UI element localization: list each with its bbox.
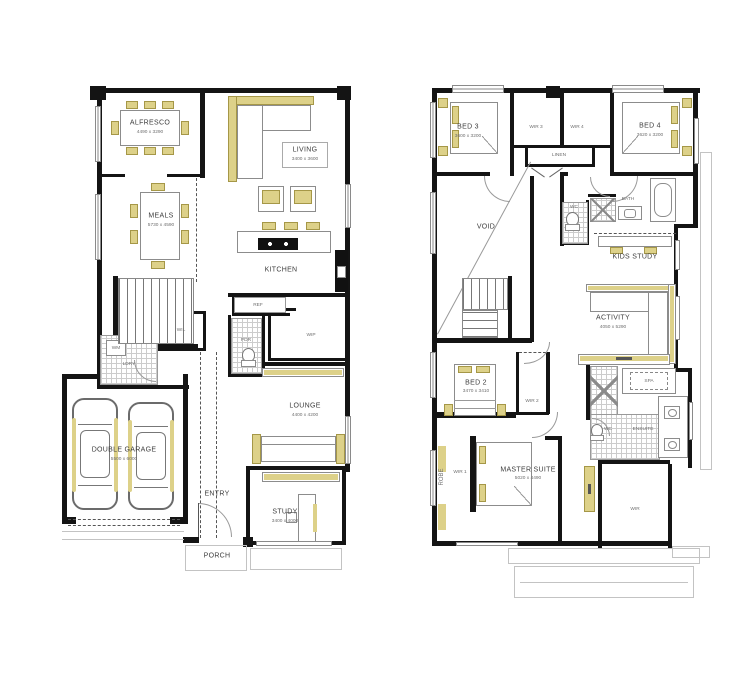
wall [508,276,512,342]
wall [560,88,564,148]
basin-bowl [668,441,677,449]
wall [525,164,595,167]
floor-plan-canvas: ALFRESCO 4490 x 3290 LIVING 3400 x 3600 … [0,0,750,695]
dashed-line [594,233,676,234]
bedside-table [682,146,692,156]
window [430,352,436,398]
window [456,542,518,546]
pillow [671,130,678,148]
pillow [671,106,678,124]
bed-fold [514,486,532,506]
room-label-master: MASTER SUITE [500,467,555,474]
bathtub-inner [654,183,672,217]
pillow [479,484,486,502]
window [430,192,436,254]
door-swing [484,176,510,202]
wall [558,436,562,541]
pillow [479,446,486,464]
room-label-ensuite: ENSUITE [633,427,654,432]
room-label-wir2: WIR 2 [525,399,538,404]
bedside-table [438,98,448,108]
room-dims-bed2: 3470 x 3410 [463,389,489,394]
door-swing [532,412,558,438]
basin-bowl [668,409,677,417]
room-label-activity: ACTIVITY [596,315,630,322]
room-label-wir1: WIR 1 [453,470,466,475]
room-label-bed3: BED 3 [457,124,479,131]
desk [598,236,672,247]
room-dims-bed4: 3620 x 3200 [637,133,663,138]
room-label-kids-study: KIDS STUDY [612,254,657,261]
roof-outline [700,152,712,470]
room-label-bed4: BED 4 [639,123,661,130]
toilet-tank [565,224,580,231]
room-label-wc-bath: WC [570,205,578,210]
sofa-cushion [670,286,674,362]
bedside-table [682,98,692,108]
first-floor-plan: BED 3 3600 x 3200 WIR 3 WIR 4 LINEN BED … [0,0,750,695]
room-label-wc-ensuite: WC [604,427,612,432]
roof-line [520,582,688,583]
room-dims-activity: 4050 x 5290 [600,325,626,330]
bed-fold [482,136,498,154]
wall [510,88,514,176]
robe-shelf [438,504,446,530]
bed-line [454,400,496,401]
room-label-wir3: WIR 3 [529,125,542,130]
wall [545,436,562,440]
shower-icon [590,366,618,416]
room-dims-master: 5020 x 4490 [515,476,541,481]
sofa-seat [648,292,668,356]
wall [432,172,490,176]
stairs [462,278,508,310]
window [612,85,664,93]
room-label-void: VOID [477,224,495,231]
wall [516,352,519,414]
sofa-cushion [588,286,674,290]
wall [610,88,614,176]
console-handle [616,357,632,360]
wall [668,464,672,548]
bedside-table [438,146,448,156]
room-label-wir: WIR [630,507,639,512]
wall [530,176,534,342]
bedside-table [444,404,453,416]
pillow [452,106,459,124]
basin-icon [624,209,636,218]
pillow [476,366,490,373]
wall [598,460,670,464]
bed-line [454,408,496,409]
window [675,240,680,270]
room-label-bath: BATH [622,197,634,202]
roof-outline [672,546,710,558]
window [694,118,699,164]
stairs [462,310,498,338]
wall [432,338,532,343]
dresser-handle [588,484,591,494]
room-label-linen: LINEN [552,153,566,158]
bedside-table [497,404,506,416]
window [452,85,504,93]
wall [598,460,602,548]
pillow [458,366,472,373]
bed-fold [622,136,638,154]
room-label-wir4: WIR 4 [570,125,583,130]
window [430,102,436,158]
label-spa: SPA [644,379,653,384]
window [689,402,693,440]
wall [546,352,550,414]
wall-corner [546,86,560,98]
window [430,450,436,506]
room-dims-bed3: 3600 x 3200 [455,134,481,139]
room-label-bed2: BED 2 [465,380,487,387]
room-label-robe: ROBE [439,468,445,485]
